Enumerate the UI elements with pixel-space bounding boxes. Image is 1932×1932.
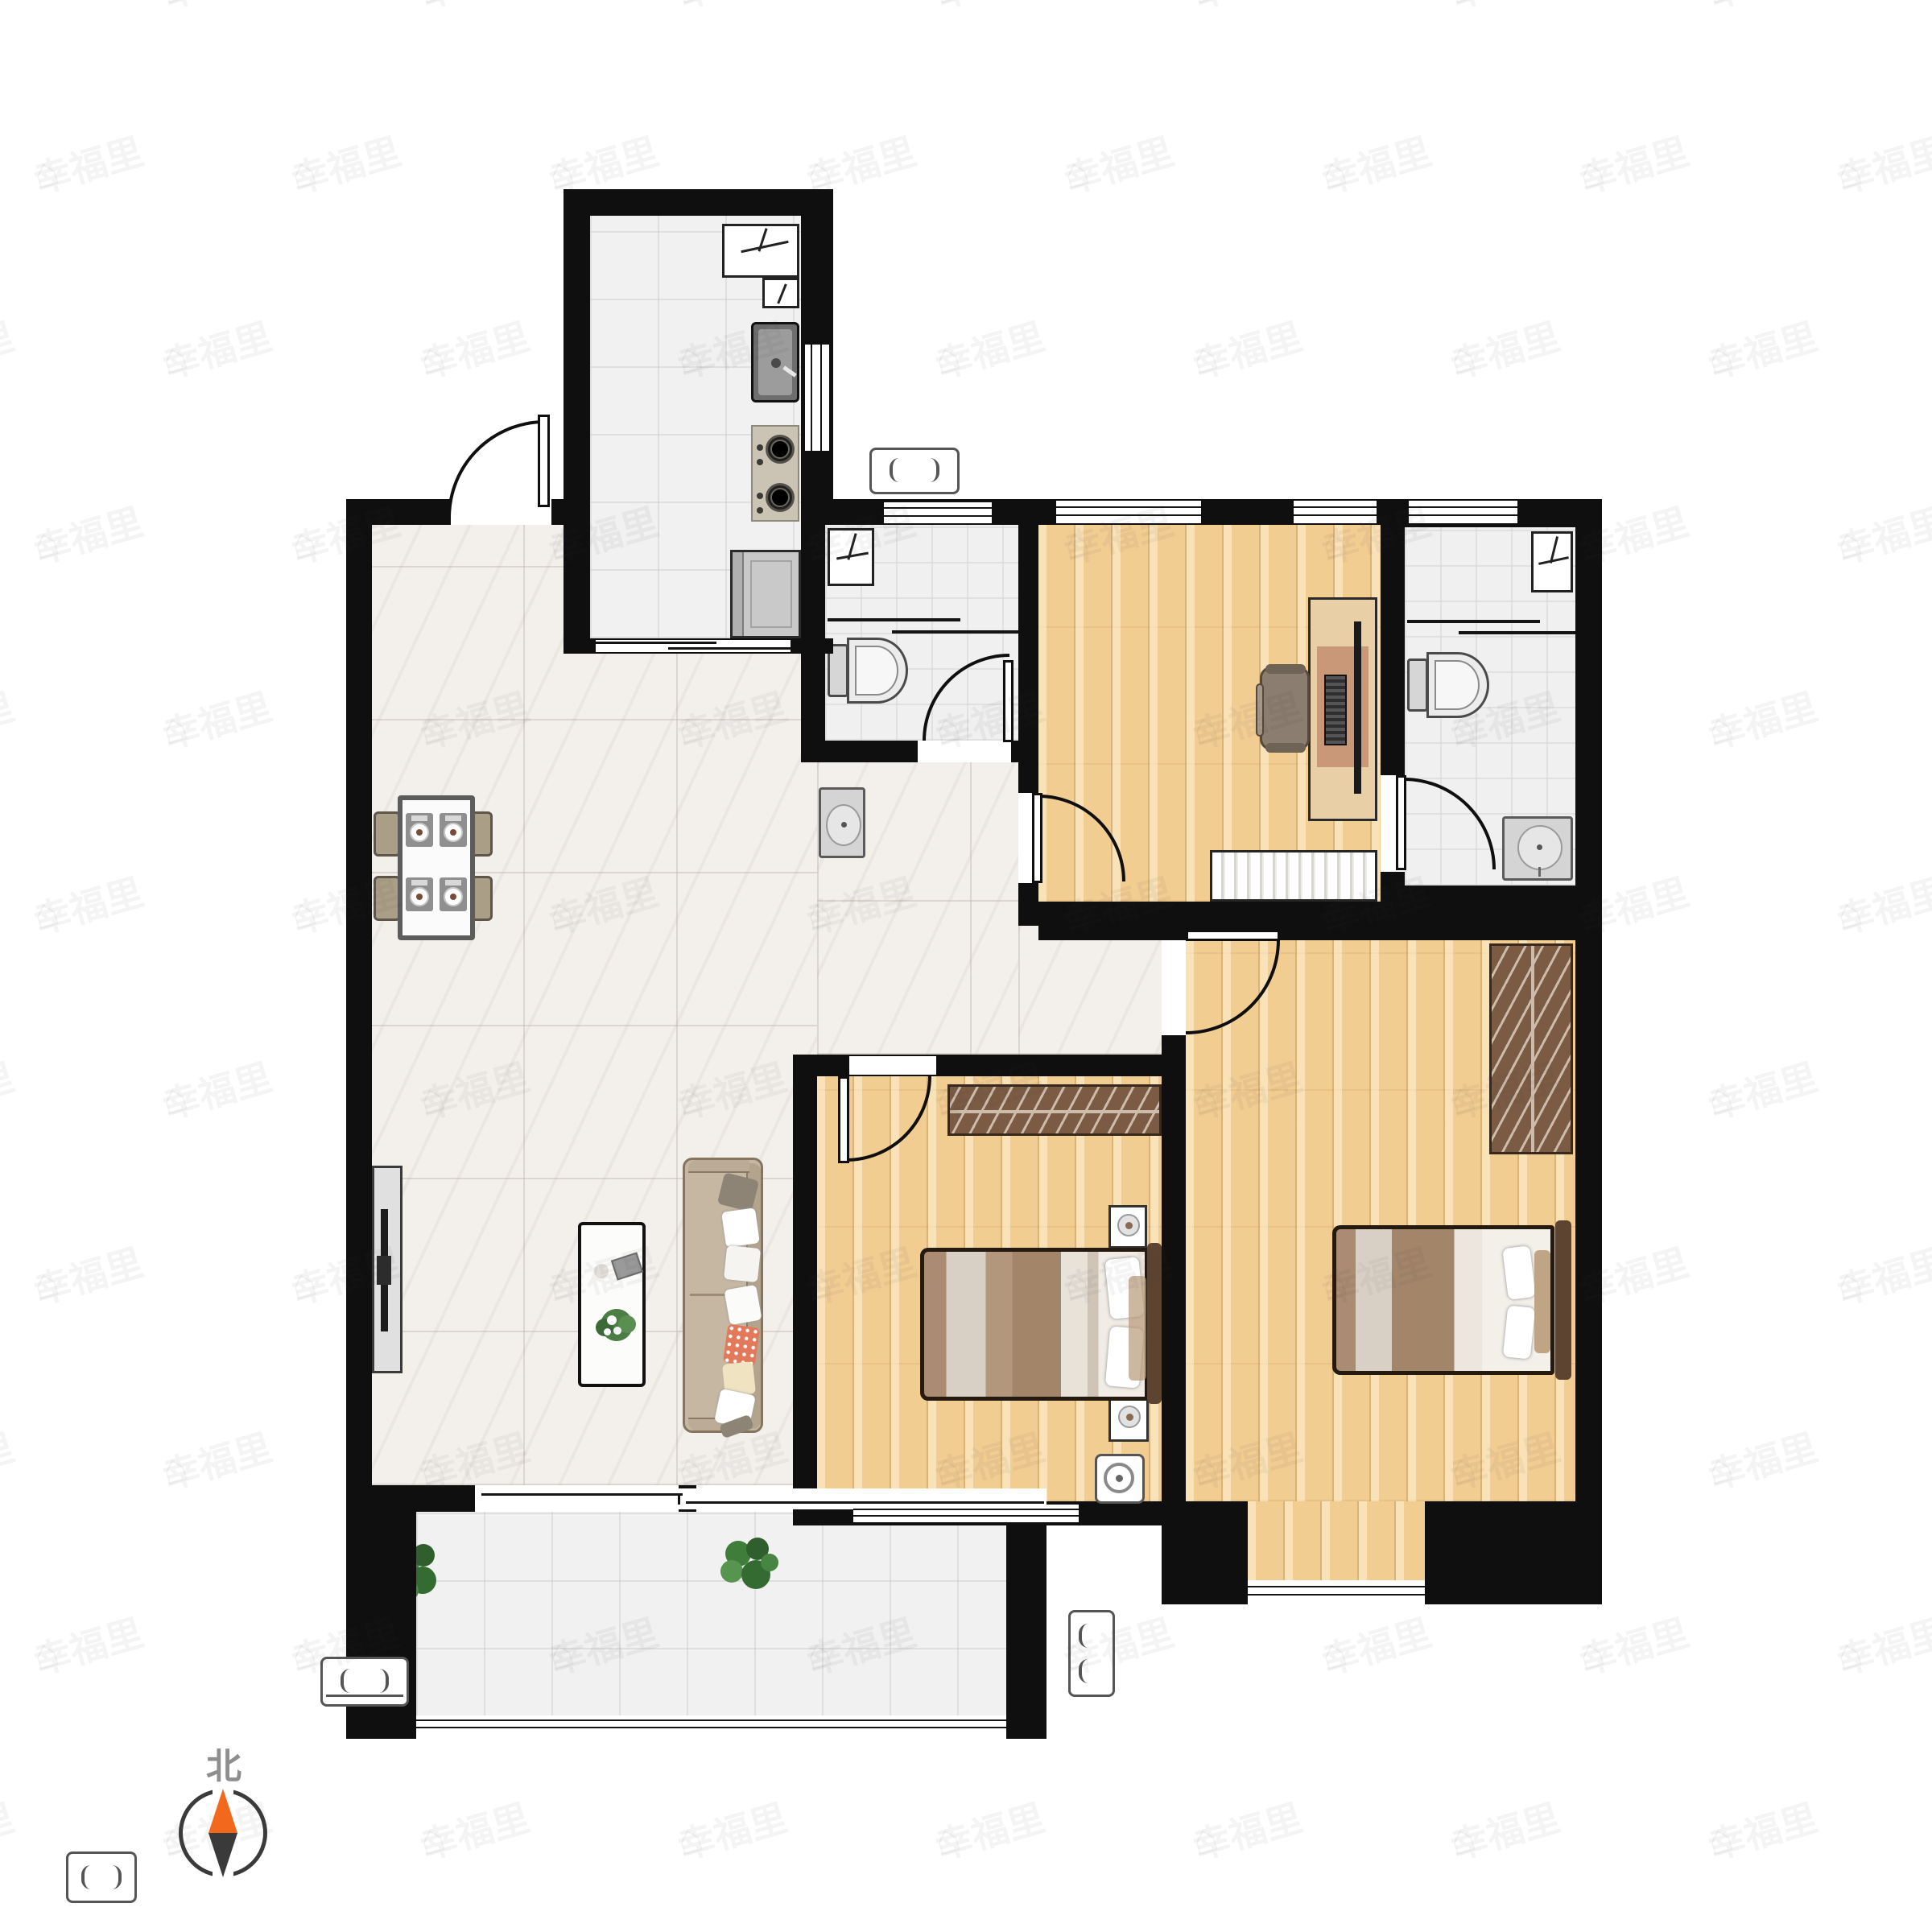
nightstand [1108,1395,1149,1442]
sofa [683,1158,763,1433]
bed-middle [920,1248,1149,1401]
ac-unit-icon [320,1657,409,1707]
watermark-text: ⌂幸福里 [1573,122,1695,204]
watermark-text: ⌂幸福里 [1831,493,1932,574]
monitor-icon [1354,621,1361,794]
watermark-text: ⌂幸福里 [1444,308,1566,389]
house-icon: ⌂ [1444,1810,1488,1866]
balcony-floor [416,1512,1006,1717]
watermark-text: ⌂幸福里 [929,308,1051,389]
watermark-text: ⌂幸福里 [1831,1604,1932,1685]
watermark-text: ⌂幸福里 [0,1789,19,1870]
watermark-text: ⌂幸福里 [0,678,19,759]
dishwasher [730,550,801,638]
bookshelf [1210,850,1377,902]
house-icon: ⌂ [1831,1255,1874,1311]
toilet-icon [1407,652,1489,718]
shower-screen [828,618,960,621]
kitchen-sink [751,322,799,402]
house-icon: ⌂ [285,885,328,940]
window [1248,1580,1425,1603]
window [884,502,992,523]
wall [1381,885,1602,902]
fridge-door-icon [762,278,799,308]
watermark-text: ⌂幸福里 [1573,1604,1695,1685]
bed-middle-headboard [1147,1243,1162,1404]
wall [1006,1512,1046,1739]
house-icon: ⌂ [1315,1625,1359,1681]
house-icon: ⌂ [156,1070,200,1125]
nightstand [1108,1205,1147,1249]
house-icon: ⌂ [1702,700,1745,755]
watermark-text: ⌂幸福里 [285,122,407,204]
wall [801,741,918,762]
watermark-text: ⌂幸福里 [156,308,278,389]
watermark-text: ⌂幸福里 [0,0,19,19]
desk-chair [1260,667,1310,750]
shower-screen [892,630,1018,634]
watermark-text: ⌂幸福里 [27,1604,149,1685]
watermark-text: ⌂幸福里 [156,678,278,759]
house-icon: ⌂ [1444,0,1488,14]
wardrobe-icon [1489,943,1573,1154]
house-icon: ⌂ [1702,1440,1745,1496]
watermark-text: ⌂幸福里 [27,863,149,944]
watermark-text: ⌂幸福里 [414,1789,535,1870]
window [1409,501,1517,523]
ac-unit-icon [66,1851,137,1903]
watermark-text: ⌂幸福里 [929,1789,1051,1870]
keyboard-icon [1324,675,1347,745]
window [416,1715,1006,1735]
window [1294,501,1377,523]
house-icon: ⌂ [1573,144,1616,200]
dining-chair [374,811,401,857]
coffee-table [578,1222,646,1387]
house-icon: ⌂ [414,0,457,14]
bedroom-door [838,1076,849,1163]
fridge-icon [722,224,799,278]
master-door [1186,930,1280,941]
wall [1011,741,1038,762]
watermark-text: ⌂幸福里 [1444,1789,1566,1870]
bedroom-door-opening [849,1056,936,1075]
house-icon: ⌂ [156,700,200,755]
watermark-text: ⌂幸福里 [1702,0,1823,19]
ac-fan-unit-icon [1095,1454,1145,1504]
wall [551,499,568,525]
shower-screen [1407,620,1540,623]
house-icon: ⌂ [1831,144,1874,200]
wall [563,189,833,216]
watermark-text: ⌂幸福里 [671,1789,793,1870]
watermark-text: ⌂幸福里 [1831,122,1932,204]
watermark-text: ⌂幸福里 [0,308,19,389]
house-icon: ⌂ [1702,1810,1745,1866]
watermark-text: ⌂幸福里 [1187,308,1308,389]
study-door [1032,793,1042,883]
watermark-text: ⌂幸福里 [1315,122,1437,204]
place-setting [440,813,467,847]
watermark-text: ⌂幸福里 [1058,122,1179,204]
window [1056,501,1201,523]
hallway-floor-east [1018,926,1186,1055]
window [853,1505,1079,1522]
watermark-text: ⌂幸福里 [1702,308,1823,389]
house-icon: ⌂ [1187,1810,1230,1866]
house-icon: ⌂ [27,1625,71,1681]
watermark-text: ⌂幸福里 [27,122,149,204]
watermark-text: ⌂幸福里 [27,1233,149,1315]
watermark-text: ⌂幸福里 [156,1418,278,1500]
wall [793,1055,817,1525]
toilet-icon [828,638,908,704]
house-icon: ⌂ [929,329,972,385]
watermark-text: ⌂幸福里 [0,1418,19,1500]
place-setting [440,877,467,911]
house-icon: ⌂ [1831,1625,1874,1681]
house-icon: ⌂ [27,514,71,570]
wall [1162,1034,1186,1501]
house-icon: ⌂ [1058,144,1101,200]
house-icon: ⌂ [671,0,715,14]
house-icon: ⌂ [285,514,328,570]
house-icon: ⌂ [1444,329,1488,385]
wardrobe-icon [947,1084,1162,1136]
watermark-text: ⌂幸福里 [1702,1418,1823,1500]
window [805,345,829,451]
watermark-text: ⌂幸福里 [1315,1604,1437,1685]
sliding-door [596,640,791,652]
entry-door [538,415,550,507]
house-icon: ⌂ [1702,0,1745,14]
wall [1575,499,1602,1501]
bathroom-east-door [1396,775,1406,870]
house-icon: ⌂ [285,144,328,200]
place-setting [406,877,433,911]
bathroom-door-opening [918,741,1011,762]
wash-basin [819,787,865,858]
watermark-text: ⌂幸福里 [1187,1789,1308,1870]
house-icon: ⌂ [27,144,71,200]
watermark-text: ⌂幸福里 [0,1048,19,1129]
house-icon: ⌂ [156,1440,200,1496]
wall [1162,902,1186,940]
wall [1425,1501,1602,1604]
house-icon: ⌂ [1702,329,1745,385]
watermark-text: ⌂幸福里 [1444,0,1566,19]
house-icon: ⌂ [1573,1625,1616,1681]
bedroom-master-bay-floor [1248,1501,1425,1584]
compass-icon [179,1789,267,1877]
ac-unit-icon [1068,1610,1115,1697]
house-icon: ⌂ [1702,1070,1745,1125]
house-icon: ⌂ [414,329,457,385]
wall [346,499,372,1512]
bathroom-door [1003,660,1013,742]
wash-basin [1502,816,1573,881]
watermark-text: ⌂幸福里 [1702,1048,1823,1129]
watermark-text: ⌂幸福里 [1702,678,1823,759]
house-icon: ⌂ [929,1810,972,1866]
watermark-text: ⌂幸福里 [1831,1233,1932,1315]
watermark-text: ⌂幸福里 [156,0,278,19]
wall [801,523,825,762]
wall [346,1485,475,1512]
house-icon: ⌂ [671,1810,715,1866]
watermark-text: ⌂幸福里 [414,0,535,19]
watermark-text: ⌂幸福里 [1702,1789,1823,1870]
compass-north-label: 北 [206,1737,242,1789]
watermark-text: ⌂幸福里 [27,493,149,574]
wall [1381,499,1405,775]
floor-plan: 北 ⌂幸福里⌂幸福里⌂幸福里⌂幸福里⌂幸福里⌂幸福里⌂幸福里⌂幸福里⌂幸福里⌂幸… [0,0,1932,1932]
house-icon: ⌂ [1187,0,1230,14]
house-icon: ⌂ [1831,885,1874,940]
shower-screen [1459,631,1575,634]
wall [563,189,590,654]
watermark-text: ⌂幸福里 [1831,863,1932,944]
washing-machine-icon [828,528,874,586]
bed-master-headboard [1555,1220,1571,1380]
wall [1162,1501,1248,1604]
plant-icon [719,1536,780,1592]
house-icon: ⌂ [27,885,71,940]
master-door-opening [1162,940,1186,1035]
house-icon: ⌂ [285,1255,328,1311]
house-icon: ⌂ [1315,144,1359,200]
wall [1038,902,1602,940]
house-icon: ⌂ [1187,329,1230,385]
ac-unit-icon [869,448,960,494]
dining-chair [374,876,401,921]
watermark-text: ⌂幸福里 [156,1048,278,1129]
place-setting [406,813,433,847]
house-icon: ⌂ [414,1810,457,1866]
watermark-text: ⌂幸福里 [929,0,1051,19]
watermark-text: ⌂幸福里 [1187,0,1308,19]
watermark-text: ⌂幸福里 [671,0,793,19]
house-icon: ⌂ [156,329,200,385]
wall [1018,883,1038,926]
bed-master [1332,1225,1554,1375]
tv-mount [377,1256,391,1285]
watermark-text: ⌂幸福里 [414,308,535,389]
house-icon: ⌂ [929,0,972,14]
house-icon: ⌂ [27,1255,71,1311]
entry-door-swing [448,420,545,518]
house-icon: ⌂ [156,0,200,14]
house-icon: ⌂ [1831,514,1874,570]
washing-machine-icon [1531,531,1573,592]
stove [751,425,799,522]
